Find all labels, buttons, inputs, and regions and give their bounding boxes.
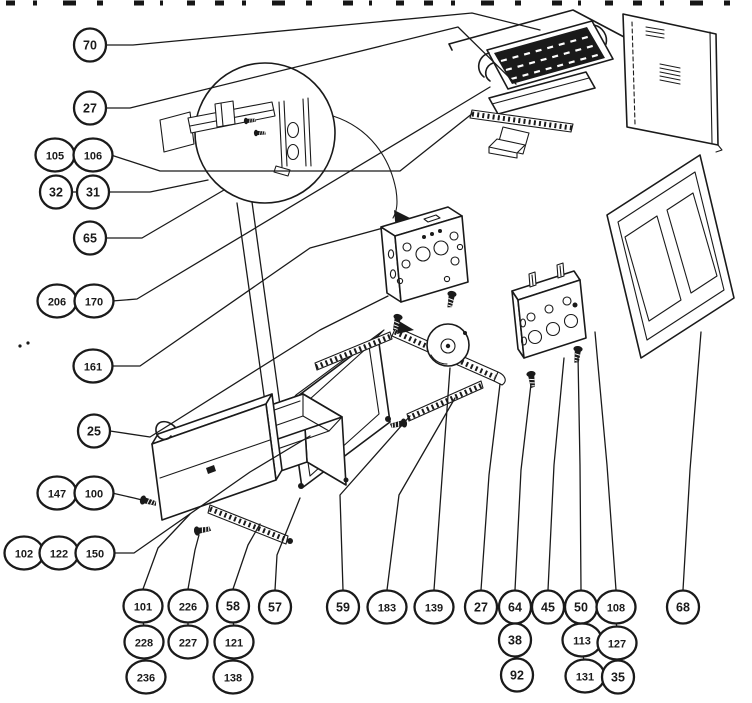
callout-59: 59 — [327, 591, 359, 624]
leader-line — [233, 524, 260, 589]
svg-text:25: 25 — [87, 424, 101, 438]
leader-line — [515, 384, 531, 590]
callout-108: 108 — [597, 591, 636, 624]
svg-text:35: 35 — [611, 670, 625, 684]
leader-line — [188, 535, 199, 589]
broil-element — [449, 10, 626, 89]
callout-236: 236 — [127, 661, 166, 694]
callout-101: 101 — [124, 590, 163, 623]
svg-text:92: 92 — [510, 668, 524, 682]
kick-strip — [208, 505, 293, 544]
callout-131: 131 — [566, 660, 605, 693]
diagram-canvas: 7027105106323165206170161251471001021221… — [0, 0, 752, 703]
svg-text:65: 65 — [83, 231, 97, 245]
svg-text:64: 64 — [508, 600, 522, 614]
pulley-disc — [427, 324, 469, 366]
leader-line — [110, 180, 208, 192]
svg-text:183: 183 — [378, 602, 396, 614]
callout-chain: 58121138 — [214, 524, 261, 694]
callout-105: 105 — [36, 139, 75, 172]
svg-text:108: 108 — [607, 602, 625, 614]
svg-text:121: 121 — [225, 637, 243, 649]
callout-127: 127 — [598, 627, 637, 660]
svg-text:113: 113 — [573, 635, 591, 647]
callout-50: 50 — [565, 591, 597, 624]
svg-text:226: 226 — [179, 601, 197, 613]
callout-228: 228 — [125, 626, 164, 659]
svg-text:161: 161 — [84, 361, 102, 373]
leader-line — [107, 190, 224, 238]
callout-227: 227 — [169, 626, 208, 659]
leader-line — [107, 13, 540, 45]
oven-door-frame — [607, 155, 734, 358]
callout-chain: 68 — [667, 332, 701, 624]
detail-bracket-art — [160, 98, 311, 176]
callout-chain: 10812735 — [595, 332, 637, 694]
svg-text:206: 206 — [48, 296, 66, 308]
svg-text:236: 236 — [137, 672, 155, 684]
svg-text:38: 38 — [508, 633, 522, 647]
callout-161: 161 — [74, 350, 113, 383]
svg-text:150: 150 — [86, 548, 104, 560]
svg-text:106: 106 — [84, 150, 102, 162]
leader-line — [683, 332, 701, 590]
callout-183: 183 — [368, 591, 407, 624]
svg-text:170: 170 — [85, 296, 103, 308]
callout-57: 57 — [259, 591, 291, 624]
svg-text:227: 227 — [179, 637, 197, 649]
svg-text:127: 127 — [608, 638, 626, 650]
callout-147: 147 — [38, 477, 77, 510]
callout-70: 70 — [74, 29, 106, 62]
svg-text:59: 59 — [336, 600, 350, 614]
callout-100: 100 — [75, 477, 114, 510]
callout-27: 27 — [465, 591, 497, 624]
svg-text:105: 105 — [46, 150, 64, 162]
callout-92: 92 — [501, 659, 533, 692]
callout-206: 206 — [38, 285, 77, 318]
callout-chain: 183 — [368, 398, 456, 624]
svg-text:131: 131 — [576, 671, 594, 683]
parts-diagram-page: 7027105106323165206170161251471001021221… — [0, 0, 752, 703]
leader-line — [112, 493, 146, 501]
callout-64: 64 — [499, 591, 531, 624]
svg-text:31: 31 — [86, 185, 100, 199]
callout-chain: 57 — [259, 498, 300, 624]
leader-line — [110, 228, 383, 366]
support-rail — [470, 110, 573, 132]
leader-line — [143, 514, 190, 589]
callout-chain: 27 — [465, 384, 500, 624]
junction-box — [381, 207, 468, 332]
svg-text:101: 101 — [134, 601, 152, 613]
svg-text:27: 27 — [83, 101, 97, 115]
callout-chain: 45 — [532, 358, 564, 624]
svg-text:50: 50 — [574, 600, 588, 614]
callout-122: 122 — [40, 537, 79, 570]
callout-27: 27 — [74, 92, 106, 125]
callout-32: 32 — [40, 176, 72, 209]
svg-text:27: 27 — [474, 600, 488, 614]
callout-106: 106 — [74, 139, 113, 172]
svg-text:58: 58 — [226, 599, 240, 613]
drawer-front-panel — [152, 394, 282, 520]
svg-text:68: 68 — [676, 600, 690, 614]
svg-text:228: 228 — [135, 637, 153, 649]
callout-58: 58 — [217, 590, 249, 623]
callout-170: 170 — [75, 285, 114, 318]
callout-38: 38 — [499, 624, 531, 657]
leader-line — [595, 332, 616, 590]
callout-chain: 70 — [74, 13, 540, 62]
callout-226: 226 — [169, 590, 208, 623]
callout-68: 68 — [667, 591, 699, 624]
leader-line — [275, 498, 300, 590]
svg-text:102: 102 — [15, 548, 33, 560]
svg-text:57: 57 — [268, 600, 282, 614]
back-panel — [623, 14, 722, 152]
callout-139: 139 — [415, 591, 454, 624]
callout-chain: 643892 — [499, 384, 533, 692]
callout-25: 25 — [78, 415, 110, 448]
svg-text:138: 138 — [224, 672, 242, 684]
callout-121: 121 — [215, 626, 254, 659]
callout-chain: 147100 — [38, 477, 147, 510]
callout-35: 35 — [602, 661, 634, 694]
callout-31: 31 — [77, 176, 109, 209]
callout-113: 113 — [563, 624, 602, 657]
leader-line — [107, 27, 516, 108]
svg-text:139: 139 — [425, 602, 443, 614]
leader-line — [481, 384, 500, 590]
callout-138: 138 — [214, 661, 253, 694]
svg-text:122: 122 — [50, 548, 68, 560]
callout-chain: 226227 — [169, 535, 208, 659]
callout-45: 45 — [532, 591, 564, 624]
leader-line — [578, 356, 581, 590]
svg-text:45: 45 — [541, 600, 555, 614]
callout-chain: 27 — [74, 27, 516, 125]
callout-102: 102 — [5, 537, 44, 570]
callout-65: 65 — [74, 222, 106, 255]
svg-text:32: 32 — [49, 185, 63, 199]
callout-chain: 3231 — [40, 176, 208, 209]
terminal-box — [512, 263, 586, 389]
svg-text:147: 147 — [48, 488, 66, 500]
svg-text:100: 100 — [85, 488, 103, 500]
stand-bracket — [489, 127, 529, 158]
svg-text:70: 70 — [83, 38, 97, 52]
callout-150: 150 — [76, 537, 115, 570]
leader-line — [548, 358, 564, 590]
